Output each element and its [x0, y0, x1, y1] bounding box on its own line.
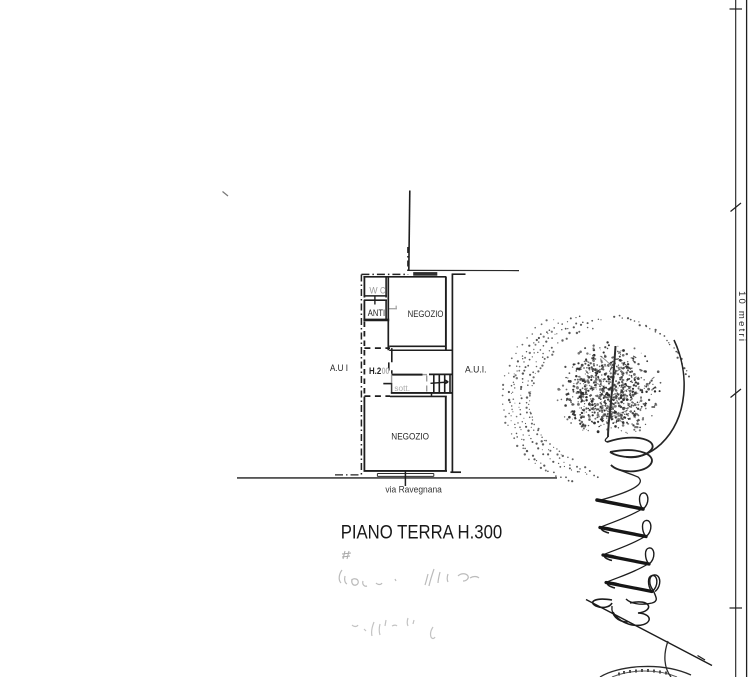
svg-text:10 metri: 10 metri	[736, 291, 747, 341]
svg-text:NEGOZIO: NEGOZIO	[391, 431, 429, 441]
svg-text:ANTI: ANTI	[368, 308, 385, 318]
svg-text:sott.: sott.	[394, 383, 410, 393]
svg-text:H.2: H.2	[369, 366, 381, 376]
svg-text:A.U.I.: A.U.I.	[465, 364, 487, 374]
svg-text:PIANO TERRA H.300: PIANO TERRA H.300	[341, 522, 503, 543]
svg-text:NEGOZIO: NEGOZIO	[408, 309, 444, 319]
svg-text:A.U I: A.U I	[330, 363, 348, 373]
svg-text:W: W	[369, 286, 377, 297]
svg-text:via Ravegnana: via Ravegnana	[385, 485, 442, 495]
svg-text:00: 00	[382, 366, 390, 376]
svg-text:C: C	[380, 286, 385, 297]
